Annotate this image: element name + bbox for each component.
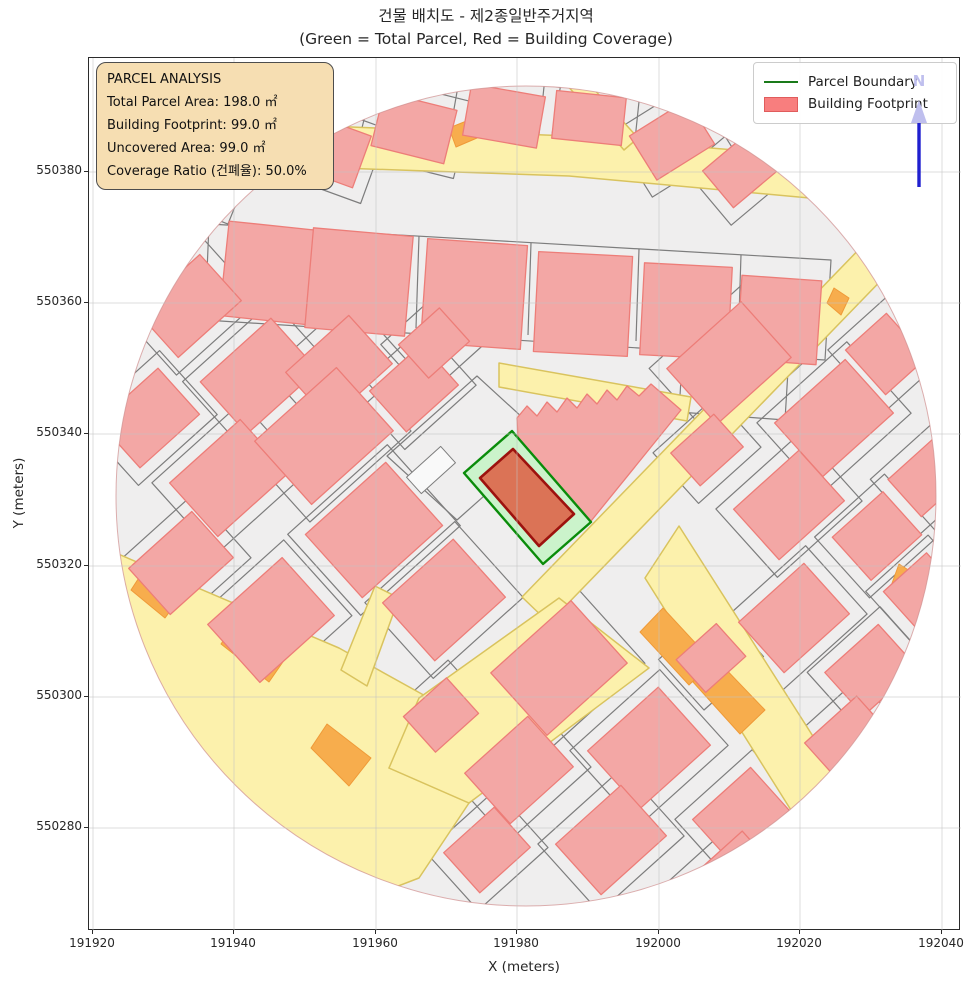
x-tick-label: 191920 xyxy=(62,936,122,950)
building-polygon xyxy=(552,91,627,146)
x-tick-label: 191960 xyxy=(345,936,405,950)
infobox-line: Building Footprint: 99.0 ㎡ xyxy=(107,114,323,137)
title-line-2: (Green = Total Parcel, Red = Building Co… xyxy=(0,28,972,51)
y-axis-label: Y (meters) xyxy=(11,433,27,553)
north-arrow: N xyxy=(901,55,939,195)
north-arrow-head-icon xyxy=(911,100,927,123)
x-tick-label: 191980 xyxy=(486,936,546,950)
building-polygon xyxy=(305,228,413,336)
x-tick-label: 191940 xyxy=(203,936,263,950)
y-tick-mark xyxy=(84,171,88,172)
x-tick-mark xyxy=(516,930,517,934)
infobox-line: Total Parcel Area: 198.0 ㎡ xyxy=(107,91,323,114)
y-tick-mark xyxy=(84,827,88,828)
red-patch-swatch xyxy=(764,97,798,112)
infobox-line: PARCEL ANALYSIS xyxy=(107,68,323,91)
y-tick-label: 550320 xyxy=(26,557,82,571)
x-tick-mark xyxy=(658,930,659,934)
x-tick-mark xyxy=(92,930,93,934)
x-tick-label: 192020 xyxy=(769,936,829,950)
y-tick-label: 550280 xyxy=(26,819,82,833)
x-tick-mark xyxy=(233,930,234,934)
x-tick-mark xyxy=(941,930,942,934)
green-line-swatch xyxy=(764,81,798,83)
x-tick-mark xyxy=(799,930,800,934)
x-tick-label: 192000 xyxy=(628,936,688,950)
x-axis-label: X (meters) xyxy=(404,959,644,975)
building-polygon xyxy=(533,252,632,357)
infobox-line: Coverage Ratio (건폐율): 50.0% xyxy=(107,160,323,183)
x-tick-mark xyxy=(375,930,376,934)
y-tick-mark xyxy=(84,302,88,303)
parcel-analysis-infobox: PARCEL ANALYSIS Total Parcel Area: 198.0… xyxy=(96,62,334,190)
y-tick-mark xyxy=(84,696,88,697)
title-line-1: 건물 배치도 - 제2종일반주거지역 xyxy=(0,5,972,28)
north-label: N xyxy=(913,72,926,90)
x-tick-label: 192040 xyxy=(911,936,971,950)
figure-title: 건물 배치도 - 제2종일반주거지역 (Green = Total Parcel… xyxy=(0,5,972,51)
y-tick-label: 550360 xyxy=(26,294,82,308)
y-tick-label: 550340 xyxy=(26,425,82,439)
y-tick-label: 550380 xyxy=(26,163,82,177)
y-tick-mark xyxy=(84,433,88,434)
infobox-line: Uncovered Area: 99.0 ㎡ xyxy=(107,137,323,160)
figure: 건물 배치도 - 제2종일반주거지역 (Green = Total Parcel… xyxy=(0,0,972,990)
y-tick-mark xyxy=(84,565,88,566)
map-clipped-group xyxy=(89,66,961,931)
y-tick-label: 550300 xyxy=(26,688,82,702)
